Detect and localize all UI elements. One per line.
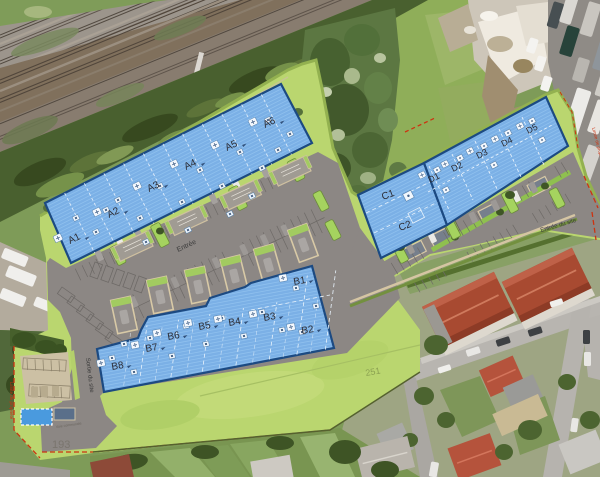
svg-text:193: 193 (52, 439, 70, 451)
svg-text:B5: B5 (198, 320, 212, 333)
svg-text:B6: B6 (167, 330, 181, 343)
svg-text:B1: B1 (293, 275, 307, 288)
svg-text:Limite de propriété: Limite de propriété (9, 382, 14, 420)
svg-text:B8: B8 (111, 360, 125, 373)
svg-text:B4: B4 (228, 316, 242, 329)
svg-text:B7: B7 (145, 342, 159, 355)
svg-text:B2: B2 (301, 324, 315, 337)
svg-text:B3: B3 (263, 311, 277, 324)
